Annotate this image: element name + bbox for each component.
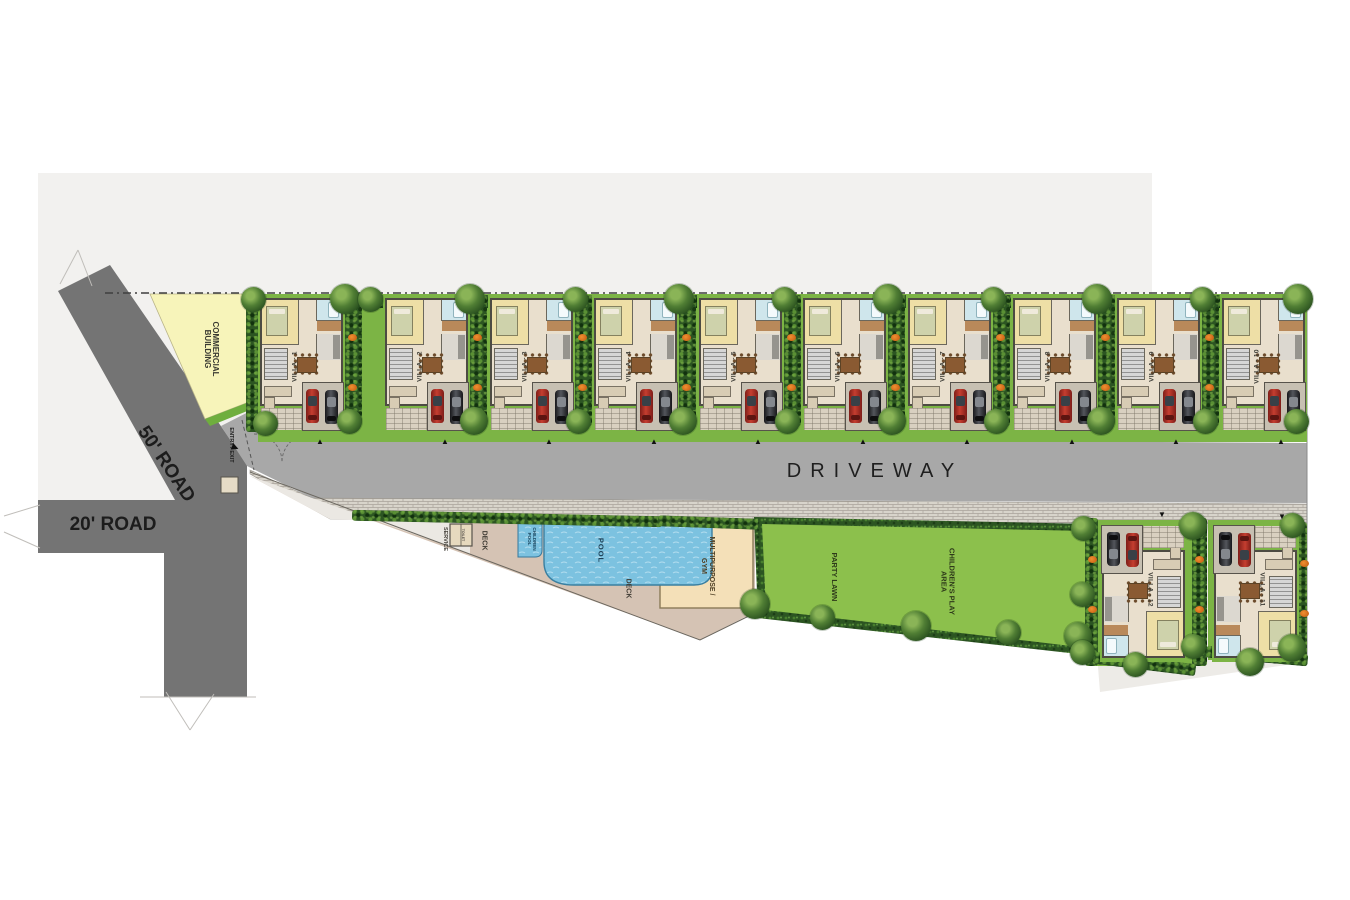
bed [1157, 620, 1179, 650]
bathroom [1216, 635, 1241, 656]
red-car [536, 389, 549, 423]
tree-icon [901, 611, 931, 641]
wardrobe [1174, 321, 1198, 331]
black-car [325, 390, 338, 424]
villa-label: VILLA - 7 [940, 339, 949, 395]
wardrobe [1216, 625, 1240, 635]
staircase [703, 348, 727, 380]
sofa [1153, 559, 1181, 570]
staircase [912, 348, 936, 380]
red-car [1059, 389, 1072, 423]
red-car [1238, 533, 1251, 567]
backdrop-top [38, 173, 1152, 294]
tree-icon [810, 605, 835, 630]
bed [705, 306, 727, 336]
hedge-strip [345, 296, 362, 426]
bed [809, 306, 831, 336]
sofa [807, 386, 835, 397]
tree-icon [1179, 512, 1207, 540]
villa-label: VILLA - 5 [730, 339, 739, 395]
gym-label: MULTIPURPOSE / GYM [699, 526, 715, 606]
wardrobe [442, 321, 466, 331]
tree-icon [253, 411, 278, 436]
staircase [1226, 348, 1250, 380]
tree-icon [1070, 582, 1095, 607]
tree-icon [775, 409, 800, 434]
sofa [598, 386, 626, 397]
tree-icon [984, 409, 1009, 434]
pool-label: POOL [596, 536, 605, 566]
bed [1228, 306, 1250, 336]
red-car [954, 389, 967, 423]
wardrobe [860, 321, 884, 331]
tree-icon [566, 409, 591, 434]
sofa [1226, 386, 1254, 397]
tree-icon [664, 284, 694, 314]
villa-label: VILLA - 4 [626, 339, 635, 395]
tree-icon [1284, 409, 1309, 434]
site-plan-base [0, 0, 1350, 900]
red-car [1126, 533, 1139, 567]
wardrobe [1070, 321, 1094, 331]
commercial-building-label: COMMERCIAL BUILDING [199, 309, 219, 389]
wardrobe [651, 321, 675, 331]
wardrobe [317, 321, 341, 331]
tree-icon [772, 287, 797, 312]
road-20-label: 20' ROAD [58, 515, 168, 539]
driveway-arrow-icon: ▲ [963, 438, 971, 446]
villa-label: VILLA - 10 [1253, 339, 1262, 395]
driveway-arrow-icon: ▲ [1277, 438, 1285, 446]
red-car [431, 389, 444, 423]
site-plan-canvas: VILLA - 1 VILLA - 2 [0, 0, 1350, 900]
guard-booth [221, 477, 238, 493]
wardrobe [1104, 625, 1128, 635]
red-car [306, 389, 319, 423]
driveway-arrow-icon: ▲ [1172, 438, 1180, 446]
driveway-label: DRIVEWAY [770, 461, 980, 485]
red-car [849, 389, 862, 423]
bed [496, 306, 518, 336]
hedge-strip [993, 296, 1010, 426]
tree-icon [1236, 648, 1264, 676]
hedge-strip [784, 296, 801, 426]
tree-icon [1193, 409, 1218, 434]
tree-icon [1082, 284, 1112, 314]
wardrobe [965, 321, 989, 331]
staircase [389, 348, 413, 380]
driveway-arrow-icon: ▼ [1278, 513, 1286, 521]
driveway-arrow-icon: ▼ [1158, 511, 1166, 519]
villa-card-6: VILLA - 6 [801, 294, 888, 432]
villa-card-7: VILLA - 7 [906, 294, 993, 432]
staircase [1269, 576, 1293, 608]
tree-icon [1190, 287, 1215, 312]
driveway-arrow-icon: ▲ [545, 438, 553, 446]
hedge-strip [1202, 296, 1219, 426]
tree-icon [669, 407, 697, 435]
hedge-strip [575, 296, 592, 426]
staircase [264, 348, 288, 380]
tree-icon [878, 407, 906, 435]
tree-icon [1181, 634, 1206, 659]
bed [914, 306, 936, 336]
staircase [1121, 348, 1145, 380]
villa-label: VILLA - 6 [835, 339, 844, 395]
tree-icon [1283, 284, 1313, 314]
tree-icon [1071, 516, 1096, 541]
sofa [389, 386, 417, 397]
villa-label: VILLA - 3 [521, 339, 530, 395]
black-car [1219, 532, 1232, 566]
villa-card-3: VILLA - 3 [488, 294, 575, 432]
deck-lower-label: DECK [623, 576, 632, 602]
children-pool-label: CHILDREN POOL [526, 522, 536, 556]
sofa [703, 386, 731, 397]
party-lawn-label: PARTY LAWN [828, 547, 838, 607]
bed [391, 306, 413, 336]
villa-card-2: VILLA - 2 [383, 294, 470, 432]
driveway-arrow-icon: ▲ [650, 438, 658, 446]
red-car [1268, 389, 1281, 423]
sofa [494, 386, 522, 397]
bed [1123, 306, 1145, 336]
tree-icon [981, 287, 1006, 312]
tree-icon [358, 287, 383, 312]
driveway-arrow-icon: ▲ [316, 438, 324, 446]
red-car [1163, 389, 1176, 423]
tree-icon [996, 620, 1021, 645]
tree-icon [460, 407, 488, 435]
staircase [494, 348, 518, 380]
tree-icon [1087, 407, 1115, 435]
bed [600, 306, 622, 336]
staircase [1017, 348, 1041, 380]
bathroom [1104, 635, 1129, 656]
driveway-arrow-icon: ▲ [754, 438, 762, 446]
tree-icon [563, 287, 588, 312]
tree-icon [330, 284, 360, 314]
tree-icon [1123, 652, 1148, 677]
villa-label: VILLA - 8 [1044, 339, 1053, 395]
staircase [598, 348, 622, 380]
villa-card-5: VILLA - 5 [697, 294, 784, 432]
car-porch [1213, 525, 1255, 574]
sofa [264, 386, 292, 397]
driveway-arrow-icon: ▲ [1068, 438, 1076, 446]
tree-icon [455, 284, 485, 314]
hedge-commercial-east [246, 294, 258, 432]
sofa [1017, 386, 1045, 397]
tree-icon [337, 409, 362, 434]
tree-icon [241, 287, 266, 312]
black-car [1107, 532, 1120, 566]
wardrobe [1279, 321, 1303, 331]
car-porch [1101, 525, 1143, 574]
sofa [1265, 559, 1293, 570]
deck-upper-label: DECK [479, 528, 488, 554]
red-car [640, 389, 653, 423]
tree-icon [873, 284, 903, 314]
villa-card-4: VILLA - 4 [592, 294, 679, 432]
red-car [745, 389, 758, 423]
driveway-arrow-icon: ▲ [441, 438, 449, 446]
driveway-arrow-icon: ▲ [859, 438, 867, 446]
wardrobe [547, 321, 571, 331]
villa-label: VILLA - 2 [417, 339, 426, 395]
tree-icon [740, 589, 770, 619]
bedroom [1146, 611, 1183, 656]
sofa [912, 386, 940, 397]
tree-icon [1278, 634, 1306, 662]
bed [266, 306, 288, 336]
villa-card-8: VILLA - 8 [1011, 294, 1098, 432]
villa-label: VILLA - 11 [1257, 562, 1266, 618]
villa-label: VILLA - 12 [1145, 562, 1154, 618]
toilet-label: TOILET [458, 526, 464, 544]
villa-card-1: VILLA - 1 [258, 294, 345, 432]
villa-card-12: VILLA - 12 [1100, 524, 1187, 662]
tree-icon [1070, 640, 1095, 665]
sofa [1121, 386, 1149, 397]
staircase [1157, 576, 1181, 608]
staircase [807, 348, 831, 380]
wardrobe [756, 321, 780, 331]
villa-label: VILLA - 1 [292, 339, 301, 395]
bed [1019, 306, 1041, 336]
villa-card-9: VILLA - 9 [1115, 294, 1202, 432]
service-label: SERVICE [439, 521, 447, 557]
play-area-label: CHILDREN'S PLAY AREA [939, 542, 956, 622]
villa-label: VILLA - 9 [1149, 339, 1158, 395]
